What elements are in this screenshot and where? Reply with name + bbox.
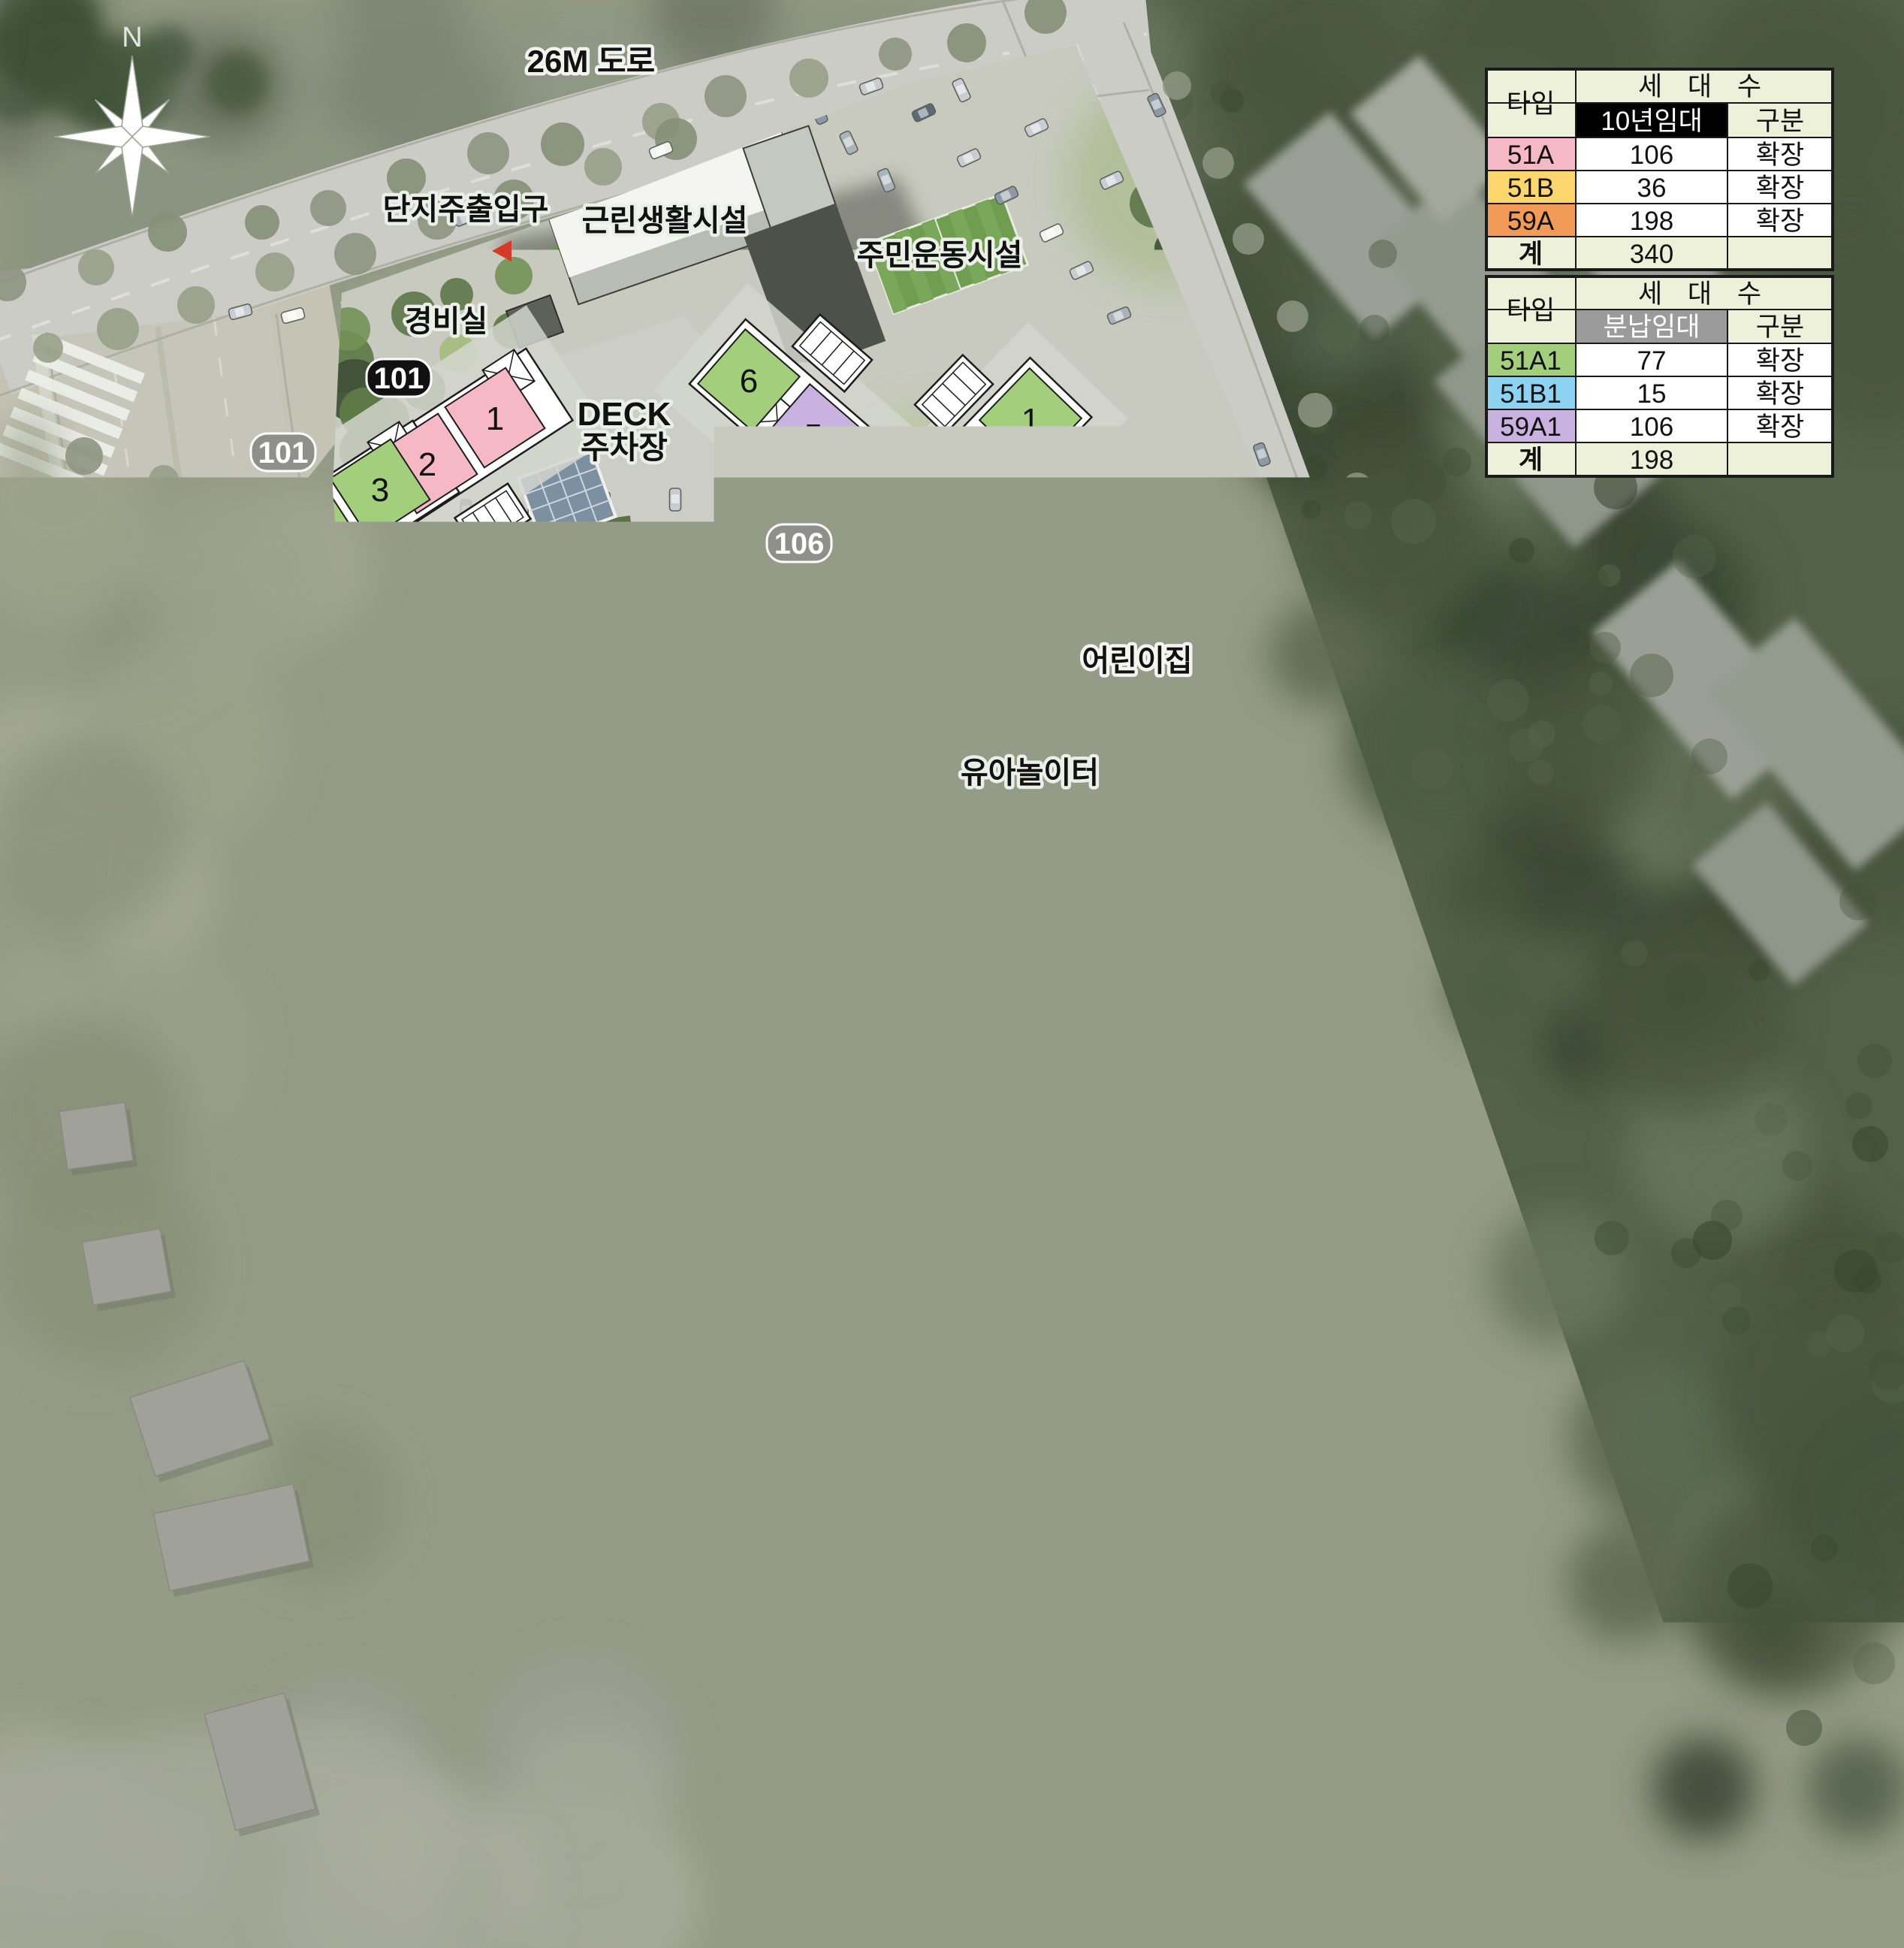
svg-text:51A1: 51A1 (1500, 346, 1562, 376)
svg-text:1: 1 (1297, 826, 1315, 863)
svg-text:단지배치도: 단지배치도 (66, 1912, 198, 1943)
svg-text:계: 계 (1519, 240, 1543, 269)
svg-text:101: 101 (258, 436, 309, 470)
svg-text:5: 5 (804, 418, 822, 455)
svg-text:어린이놀이터-2: 어린이놀이터-2 (1593, 1485, 1785, 1518)
svg-text:101: 101 (374, 362, 424, 395)
svg-text:2: 2 (1533, 1343, 1551, 1380)
svg-text:5: 5 (1082, 961, 1100, 998)
svg-text:6: 6 (1024, 911, 1042, 947)
svg-text:주민공동시설/: 주민공동시설/ (623, 1220, 798, 1253)
svg-text:타입: 타입 (1507, 89, 1555, 119)
svg-text:51A: 51A (1507, 140, 1555, 170)
svg-text:세 대 수: 세 대 수 (1638, 72, 1770, 101)
svg-text:어린이놀이터-1: 어린이놀이터-1 (893, 1287, 1085, 1320)
svg-text:15: 15 (1637, 379, 1667, 409)
svg-text:4: 4 (1142, 1016, 1160, 1053)
svg-text:계: 계 (1519, 445, 1543, 475)
svg-text:2: 2 (964, 461, 982, 498)
svg-text:6: 6 (740, 363, 758, 400)
svg-text:경로당: 경로당 (669, 1250, 753, 1283)
svg-text:198: 198 (1630, 445, 1673, 475)
svg-text:77: 77 (1637, 346, 1667, 376)
svg-text:36: 36 (1637, 174, 1667, 203)
svg-text:확장: 확장 (1756, 379, 1804, 409)
svg-text:유아놀이터: 유아놀이터 (961, 757, 1099, 790)
svg-text:2: 2 (742, 893, 760, 930)
svg-text:휴게소-2: 휴게소-2 (810, 1095, 920, 1128)
svg-text:3: 3 (1491, 1398, 1509, 1435)
svg-text:확장: 확장 (1756, 346, 1804, 376)
svg-text:340: 340 (1630, 240, 1673, 269)
svg-text:51B1: 51B1 (1500, 379, 1562, 409)
svg-text:3: 3 (956, 1513, 974, 1550)
svg-text:N: N (122, 22, 142, 53)
svg-text:경비실: 경비실 (405, 305, 487, 338)
svg-text:단지주출입구: 단지주출입구 (383, 193, 549, 226)
svg-text:1: 1 (1588, 1271, 1606, 1308)
svg-text:1: 1 (486, 400, 504, 437)
svg-text:지하주차장: 지하주차장 (1388, 1135, 1526, 1168)
svg-text:휴게소-1: 휴게소-1 (1231, 1530, 1341, 1563)
svg-text:타입: 타입 (1507, 296, 1555, 325)
svg-text:주민운동시설: 주민운동시설 (857, 239, 1023, 272)
svg-text:1: 1 (814, 841, 832, 877)
svg-text:6: 6 (1316, 1358, 1334, 1395)
svg-text:26M 도로: 26M 도로 (527, 44, 656, 79)
svg-text:DECK: DECK (578, 396, 671, 433)
svg-text:확장: 확장 (1756, 412, 1804, 442)
svg-text:세 대 수: 세 대 수 (1638, 279, 1770, 309)
svg-text:3: 3 (1196, 944, 1215, 981)
svg-text:105: 105 (1030, 1053, 1080, 1086)
svg-text:6: 6 (715, 1542, 733, 1578)
svg-text:확장: 확장 (1756, 207, 1804, 236)
svg-text:1: 1 (1107, 1483, 1125, 1520)
svg-text:관리사무소/: 관리사무소/ (637, 1189, 783, 1222)
svg-text:근린생활시설: 근린생활시설 (582, 204, 748, 237)
svg-text:59A: 59A (1507, 207, 1555, 236)
svg-text:29M 도로: 29M 도로 (303, 1079, 432, 1114)
svg-text:구분: 구분 (1756, 107, 1804, 136)
svg-text:4: 4 (611, 977, 629, 1013)
svg-text:25M 도로: 25M 도로 (1431, 1733, 1559, 1768)
svg-text:5: 5 (802, 1533, 820, 1570)
svg-text:4: 4 (1433, 1508, 1451, 1545)
svg-text:4: 4 (868, 1524, 886, 1560)
svg-text:분납임대: 분납임대 (1604, 313, 1700, 342)
svg-text:1: 1 (1021, 402, 1040, 439)
svg-text:104: 104 (1334, 1512, 1384, 1545)
svg-text:2: 2 (1238, 897, 1256, 934)
svg-text:구분: 구분 (1756, 313, 1804, 342)
svg-text:106: 106 (1630, 140, 1673, 170)
svg-text:59A1: 59A1 (1500, 412, 1562, 442)
svg-text:5: 5 (1376, 1428, 1394, 1465)
svg-text:106: 106 (1630, 412, 1673, 442)
svg-text:2: 2 (418, 446, 436, 483)
svg-text:주차장: 주차장 (581, 430, 668, 465)
svg-text:4: 4 (858, 464, 876, 500)
svg-text:106: 106 (774, 527, 825, 560)
svg-text:2: 2 (1023, 1495, 1041, 1532)
svg-text:51B: 51B (1507, 174, 1554, 203)
svg-text:3: 3 (686, 929, 705, 965)
svg-text:확장: 확장 (1756, 174, 1804, 203)
svg-text:198: 198 (1630, 207, 1673, 236)
svg-text:3: 3 (927, 514, 945, 551)
svg-text:103: 103 (662, 1630, 712, 1663)
svg-text:10년임대: 10년임대 (1601, 107, 1703, 136)
svg-text:102: 102 (564, 1074, 614, 1107)
svg-text:확장: 확장 (1756, 140, 1804, 170)
svg-text:3: 3 (371, 472, 389, 509)
svg-text:어린이집: 어린이집 (1082, 645, 1192, 678)
